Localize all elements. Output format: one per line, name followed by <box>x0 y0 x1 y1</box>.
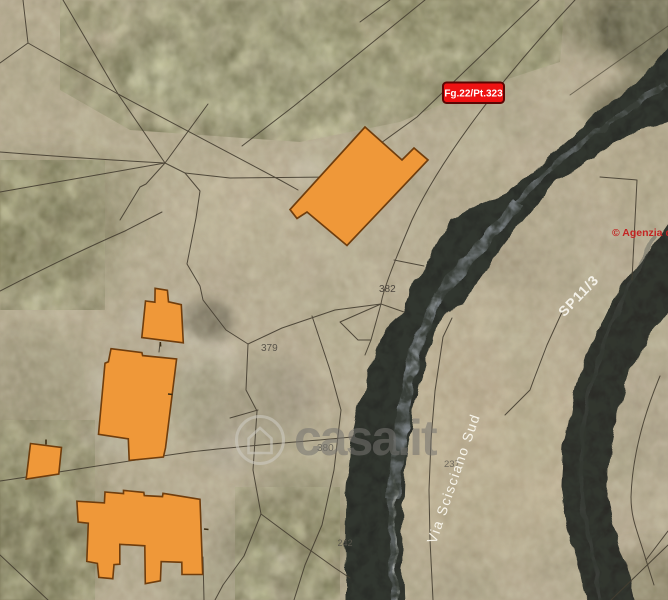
svg-text:Fg.22/Pt.323: Fg.22/Pt.323 <box>444 89 503 100</box>
svg-text:379: 379 <box>261 343 278 354</box>
svg-text:© Agenzia dell: © Agenzia dell <box>612 227 668 239</box>
svg-text:382: 382 <box>379 284 396 295</box>
svg-text:242: 242 <box>338 538 353 548</box>
svg-text:casa.it: casa.it <box>294 410 438 466</box>
